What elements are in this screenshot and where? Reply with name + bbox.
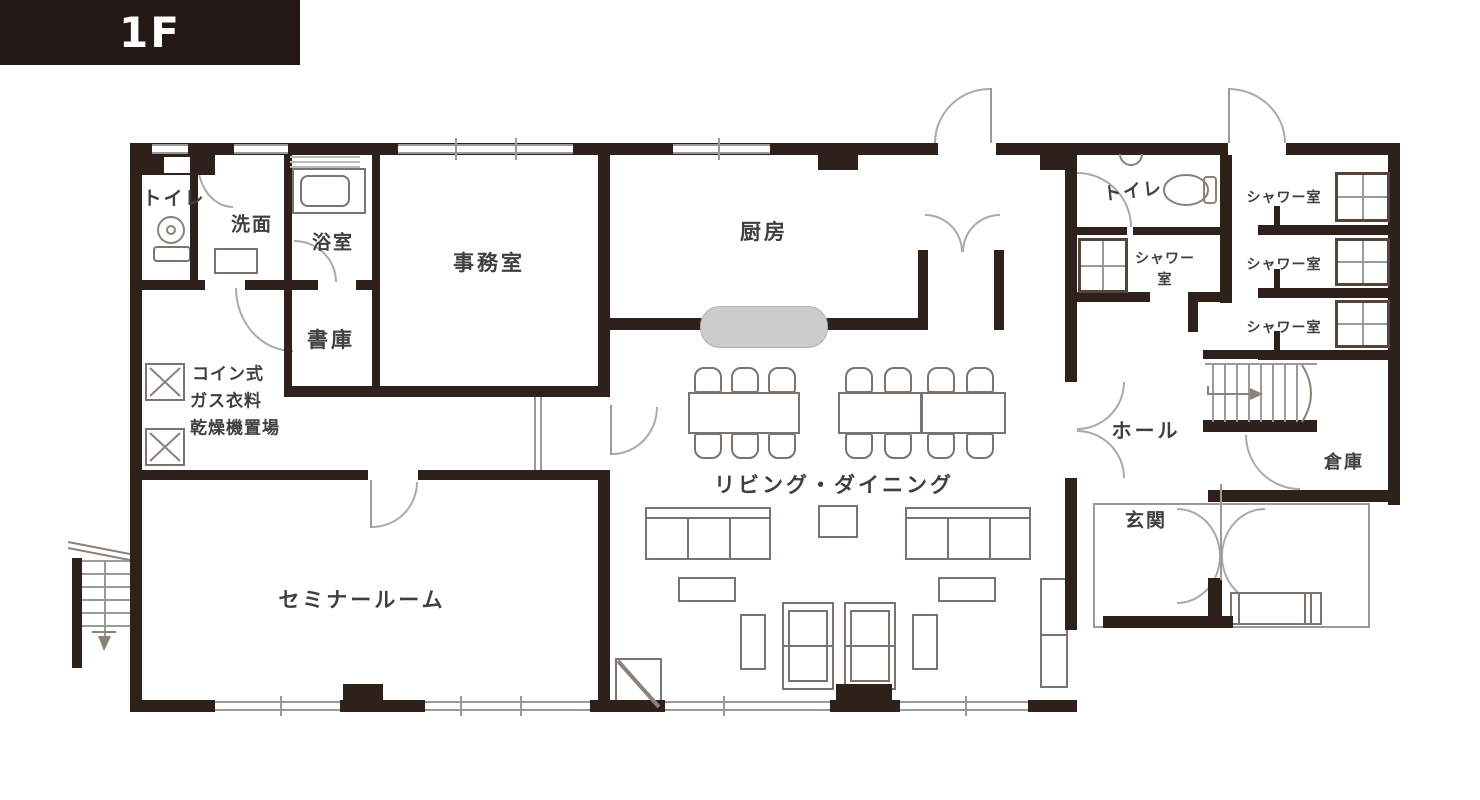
wall	[1188, 292, 1230, 302]
floor-plan-canvas: 1F	[0, 0, 1480, 800]
room-label-kitchen: 厨房	[740, 216, 788, 246]
chair	[768, 367, 796, 393]
wall-niche	[164, 157, 190, 173]
stair-tread	[82, 560, 130, 562]
room-label-toilet-left: トイレ	[142, 184, 205, 211]
sliding-door	[534, 397, 536, 470]
wall	[284, 280, 318, 290]
wall	[598, 143, 610, 397]
sofa-line	[906, 517, 1030, 519]
wall	[1077, 227, 1127, 235]
bathtub-inner	[300, 175, 350, 207]
wall-pillar	[343, 684, 383, 702]
chair	[768, 433, 796, 459]
door-leaf	[1220, 484, 1222, 580]
wall	[1103, 616, 1233, 628]
door-arc	[962, 214, 1000, 252]
wall	[598, 470, 610, 712]
room-label-hall: ホール	[1112, 415, 1181, 444]
window-tick	[280, 696, 282, 716]
stair-tread	[82, 612, 130, 614]
chair	[694, 433, 722, 459]
tile-line	[290, 166, 360, 168]
dryer-box	[145, 428, 185, 466]
room-label-shower-3: シャワー室	[1247, 317, 1322, 337]
cabinet	[1040, 578, 1068, 688]
wall	[284, 386, 598, 397]
stairs-rail	[104, 560, 106, 636]
side-table	[912, 614, 938, 670]
wall	[1065, 155, 1077, 382]
wall	[1208, 490, 1400, 502]
door-leaf	[610, 405, 612, 455]
room-label-living-dining: リビング・ダイニング	[714, 469, 954, 499]
wall	[1028, 700, 1077, 712]
floor-label: 1F	[119, 8, 181, 57]
room-label-shower-2: シャワー室	[1247, 254, 1322, 274]
chair	[731, 433, 759, 459]
room-label-laundry-2: ガス衣料	[190, 387, 262, 412]
window-tick	[520, 696, 522, 716]
shower-stall-grid	[1335, 172, 1390, 222]
dryer-box	[145, 363, 185, 401]
room-label-entrance: 玄関	[1125, 506, 1167, 533]
armchair-line	[783, 645, 833, 647]
door-arc	[934, 88, 990, 143]
sliding-door	[540, 397, 542, 470]
tile-line	[290, 156, 360, 158]
sofa-line	[646, 517, 770, 519]
sofa-line	[947, 518, 949, 559]
washbasin	[214, 248, 258, 274]
wall	[1065, 292, 1150, 302]
wall-pillar	[818, 152, 858, 170]
room-label-shower-1: シャワー室	[1247, 187, 1322, 207]
wall	[142, 470, 368, 480]
armchair-line	[845, 645, 895, 647]
chair	[845, 367, 873, 393]
chair	[884, 367, 912, 393]
door-arc	[612, 407, 658, 455]
room-label-archive: 書庫	[307, 324, 355, 354]
window	[398, 144, 573, 154]
wall	[284, 155, 292, 397]
side-table	[818, 505, 858, 538]
door-leaf	[990, 88, 992, 143]
chair	[927, 433, 955, 459]
window	[900, 701, 1028, 711]
room-label-storage: 倉庫	[1324, 448, 1364, 474]
bench-line	[1304, 594, 1306, 623]
chair	[694, 367, 722, 393]
room-label-washroom: 洗面	[231, 210, 273, 237]
stair-tread	[82, 625, 130, 627]
room-label-bathroom: 浴室	[312, 228, 354, 255]
wall	[1188, 302, 1198, 332]
door-arc	[372, 482, 418, 528]
window-tick	[723, 696, 725, 716]
window	[665, 701, 830, 711]
chair	[884, 433, 912, 459]
door-leaf	[370, 480, 372, 528]
stair-tread	[1296, 365, 1298, 422]
kitchen-counter	[700, 306, 828, 348]
dining-table	[688, 392, 800, 434]
window	[234, 144, 288, 154]
side-table	[740, 614, 766, 670]
stair-tread	[82, 573, 130, 575]
sofa-line	[687, 518, 689, 559]
wall	[994, 250, 1004, 330]
stair-tread	[1272, 365, 1274, 422]
tile-line	[290, 161, 360, 163]
wall	[1220, 155, 1232, 303]
window-tick	[718, 138, 720, 160]
room-label-seminar: セミナールーム	[278, 584, 445, 614]
floor-header: 1F	[0, 0, 300, 65]
wall	[130, 280, 205, 290]
window	[673, 144, 770, 154]
toilet-base	[153, 246, 191, 262]
wall	[1286, 143, 1400, 155]
wall	[918, 250, 928, 330]
wall	[418, 470, 598, 480]
room-label-toilet-right: トイレ	[1102, 174, 1164, 206]
room-label-office: 事務室	[453, 247, 525, 277]
wall	[190, 155, 198, 285]
stairs-post	[72, 558, 82, 668]
coffee-table	[938, 577, 996, 602]
stair-tread	[1212, 365, 1214, 422]
door-arc	[1245, 435, 1300, 490]
cabinet-line	[1041, 634, 1067, 636]
window	[215, 701, 340, 711]
chair	[731, 367, 759, 393]
coffee-table	[678, 577, 736, 602]
bench-line	[1238, 594, 1240, 623]
stair-tread	[1224, 365, 1226, 422]
room-label-shower-left-1: シャワー	[1135, 248, 1195, 268]
door-stop	[1274, 206, 1280, 230]
shoe-bench	[1230, 592, 1322, 625]
stair-tread	[1284, 365, 1286, 422]
sofa-line	[729, 518, 731, 559]
room-label-shower-left-2: 室	[1158, 269, 1173, 289]
wall	[130, 143, 142, 712]
sofa	[645, 507, 771, 560]
window-tick	[455, 138, 457, 160]
door-arc	[1228, 88, 1286, 143]
wall-pillar	[836, 684, 892, 702]
room-label-laundry-3: 乾燥機置場	[190, 414, 280, 439]
shower-stall-grid	[1335, 300, 1390, 348]
room-label-laundry-1: コイン式	[192, 360, 264, 385]
stair-tread	[1236, 365, 1238, 422]
window	[152, 144, 188, 154]
window-tick	[460, 696, 462, 716]
door-arc	[925, 214, 963, 252]
wall	[130, 700, 215, 712]
window-tick	[965, 696, 967, 716]
window	[425, 701, 590, 711]
door-leaf	[1228, 88, 1230, 143]
chair	[966, 433, 994, 459]
wall	[1133, 227, 1220, 235]
chair	[966, 367, 994, 393]
window-tick	[515, 138, 517, 160]
wall	[1203, 350, 1303, 359]
shower-stall-grid	[1335, 238, 1390, 286]
chair	[845, 433, 873, 459]
chair	[927, 367, 955, 393]
sofa-line	[989, 518, 991, 559]
sofa	[905, 507, 1031, 560]
wall	[1065, 478, 1077, 630]
wall	[996, 143, 1228, 155]
stair-tread	[1248, 365, 1250, 422]
table-divider	[920, 393, 923, 433]
stair-tread	[82, 586, 130, 588]
wall	[372, 155, 380, 386]
stair-tread	[1260, 365, 1262, 422]
shower-stall-grid	[1078, 238, 1128, 293]
bench-line	[1310, 594, 1312, 623]
stair-tread	[82, 599, 130, 601]
